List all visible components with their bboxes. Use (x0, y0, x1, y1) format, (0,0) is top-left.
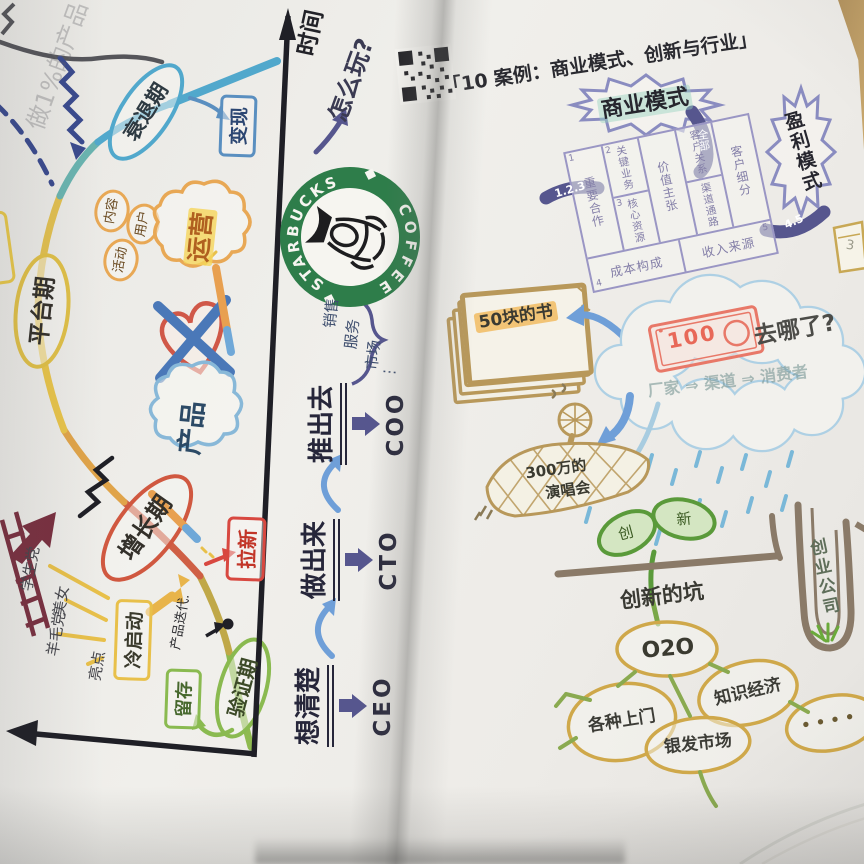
pullnew-box: 拉新 (225, 516, 266, 581)
canvas-label: 价值主张 (654, 159, 681, 213)
corner-wave-line (0, 42, 162, 62)
starbucks-logo: STARBUCKS COFFEE (261, 147, 439, 327)
partial-box (0, 212, 15, 287)
down-arrow-tip (365, 412, 380, 436)
canvas-num-2: 2 (604, 145, 612, 156)
canvas-num-1: 1 (568, 153, 576, 164)
money-cloud (596, 276, 864, 450)
step-label: 推出去 (301, 383, 347, 465)
cloud-to-stadium-arrow (608, 396, 630, 438)
canvas-num-3: 3 (616, 198, 624, 209)
step-label: 做出来 (294, 519, 340, 601)
product-label: 产品 (176, 400, 210, 457)
scope-service: 服务 (344, 318, 363, 349)
step-role: COO (383, 392, 409, 457)
canvas-label: 核心资源 (624, 197, 648, 245)
canvas-label: 关键业务 (613, 144, 637, 192)
down-arrow-tip (352, 694, 367, 718)
retention-box: 留存 (164, 668, 202, 729)
page-edges (740, 804, 864, 864)
down-arrow-icon (345, 554, 358, 567)
monetize-arrow (190, 98, 222, 114)
canvas-label: 成本构成 (608, 251, 665, 281)
ops-label: 运营 (185, 208, 217, 266)
step-think-clear: 想清楚 CEO (288, 646, 400, 766)
leaf-right-label: 新 (676, 512, 692, 529)
step-push-out: 推出去 COO (301, 364, 413, 484)
canvas-label: 收入来源 (700, 232, 757, 262)
canvas-label: 客户细分 (727, 144, 754, 198)
play-arrow (316, 122, 340, 152)
corner-zigzag (2, 4, 14, 34)
step-build-it: 做出来 CTO (294, 500, 406, 620)
down-arrow-icon (352, 418, 365, 431)
down-arrow-icon (339, 700, 352, 713)
time-axis-arrowhead (279, 8, 296, 40)
canvas-num-4: 4 (595, 278, 603, 289)
scope-sales: 销售 (323, 297, 342, 328)
down-arrow-tip (358, 548, 373, 572)
canvas-num-5: 5 (762, 222, 770, 233)
ops-bubbles (93, 189, 161, 283)
step-label: 想清楚 (288, 665, 334, 747)
scope-ellipsis: ⋮ (381, 364, 398, 381)
step-role: CEO (370, 675, 396, 736)
monetize-box: 变现 (218, 94, 257, 157)
step-role: CTO (376, 529, 402, 590)
book-stack (446, 285, 597, 403)
book-photo: STARBUCKS COFFEE (0, 0, 864, 864)
users-axis-arrowhead (6, 720, 38, 746)
ribbon-all-label: 全部 (696, 128, 710, 151)
ground-line (558, 556, 776, 574)
o2o-label: O2O (641, 635, 696, 663)
time-axis (254, 16, 288, 757)
pullnew-arrow (206, 556, 226, 564)
canvas-label: 渠道通路 (698, 181, 722, 229)
coldstart-box: 冷启动 (113, 599, 153, 681)
